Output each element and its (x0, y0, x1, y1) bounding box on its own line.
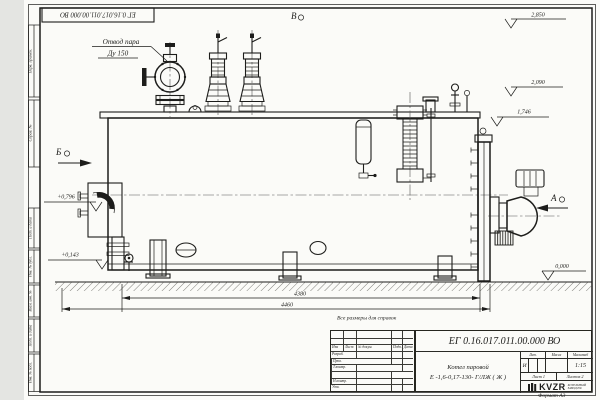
col-podp: Подп. (391, 344, 402, 351)
elevation-0000: 0,000 (542, 264, 586, 280)
svg-text:0,000: 0,000 (555, 264, 569, 270)
margin-label: Подп. и дата (29, 217, 33, 240)
view-label-a: А (536, 193, 568, 212)
margin-box: Подп. и дата (29, 208, 41, 248)
margin-label: Подп. и дата (29, 325, 33, 348)
svg-text:Б: Б (55, 147, 62, 157)
role-razrab: Разраб. (331, 351, 356, 358)
lifting-lug (189, 106, 201, 113)
col-ndocum: № докум. (356, 344, 391, 351)
support-leg (434, 256, 456, 280)
role-prov: Пров. (331, 358, 356, 365)
deck-fittings (423, 84, 470, 112)
company-name: КОТЕЛЬНЫЙ ЗАВОД РФ (568, 384, 586, 391)
doc-number: ЕГ 0.16.017.011.00.000 ВО (416, 331, 593, 351)
margin-box: Инв. № подл. (29, 354, 41, 392)
company-logo-cell: KVZR КОТЕЛЬНЫЙ ЗАВОД РФ (520, 380, 593, 393)
callout-line1: Отвод пара (103, 38, 140, 46)
economizer-box (78, 183, 122, 237)
lit-value: И (520, 358, 528, 372)
level-probe (356, 120, 377, 178)
safety-valve-1 (205, 30, 231, 116)
boiler-side-view (55, 30, 592, 291)
product-name-line1: Котел паровой (447, 363, 488, 373)
role-nkontr: Н.контр. (331, 378, 356, 385)
support-leg (279, 252, 301, 280)
water-level-gauge (393, 92, 435, 200)
product-name-line2: Е -1,6-0,17-130- Г/ЛЖ ( Ж ) (430, 373, 506, 383)
support-column (146, 240, 170, 278)
view-label-b: Б (55, 147, 92, 167)
lit-header: Лит. (520, 351, 545, 358)
boiler-shell (108, 118, 478, 270)
top-stamp-doc-number: ЕГ 0.16.017.011.00.000 ВО (60, 11, 137, 18)
manhole-right (310, 242, 326, 255)
col-izm: Изм (331, 344, 343, 351)
margin-label: Инв. № подл. (29, 362, 33, 384)
margin-columns: Перв. примен. Справ. № Подп. и дата Инв.… (28, 25, 41, 392)
margin-label: Справ. № (28, 124, 33, 141)
svg-text:2,850: 2,850 (531, 13, 545, 19)
scale-header: Масштаб (567, 351, 593, 358)
sheets-total: Листов 2 (556, 372, 593, 380)
product-name: Котел паровой Е -1,6-0,17-130- Г/ЛЖ ( Ж … (416, 351, 520, 393)
format-label: Формат А3 (538, 393, 565, 399)
rear-flange-wall (471, 128, 492, 281)
title-block-revision-grid: Изм Лист № докум. Подп. Дата Разраб. Про… (330, 330, 415, 392)
kvzr-logo-icon (528, 383, 537, 392)
logo-text: KVZR (539, 382, 566, 392)
view-label-v: В (291, 11, 304, 21)
margin-label: Инв. № дубл. (29, 256, 33, 278)
svg-text:2,090: 2,090 (531, 80, 545, 86)
sheet-number: Лист 1 (520, 372, 556, 380)
margin-label: Взам. инв. № (29, 290, 33, 311)
dim-4460: 4460 (281, 302, 293, 309)
margin-label: Перв. примен. (28, 49, 33, 75)
elevation-1746: 1,746 (491, 109, 549, 127)
dim-4380: 4380 (294, 291, 306, 298)
margin-box: Перв. примен. (28, 25, 41, 97)
svg-text:1,746: 1,746 (517, 109, 531, 116)
margin-box: Инв. № дубл. (29, 250, 41, 283)
steam-outlet-valve (142, 42, 186, 118)
margin-box: Подп. и дата (29, 319, 41, 352)
role-utv: Утв. (331, 384, 356, 391)
callout-line2: Ду 150 (107, 50, 129, 58)
svg-text:+0,796: +0,796 (57, 195, 75, 201)
elevation-0796: +0,796 (44, 195, 102, 212)
svg-text:В: В (291, 11, 297, 21)
safety-valve-2 (239, 30, 265, 116)
col-list: Лист (343, 344, 356, 351)
title-block-main: ЕГ 0.16.017.011.00.000 ВО Котел паровой … (415, 330, 592, 392)
ground-hatching (55, 282, 592, 291)
elevation-2090: 2,090 (505, 80, 563, 96)
col-data: Дата (402, 344, 413, 351)
margin-box: Справ. № (28, 100, 41, 167)
reference-note: Все размеры для справок (337, 315, 397, 322)
role-tkontr: Т.контр. (331, 364, 356, 371)
mass-header: Масса (545, 351, 567, 358)
margin-box: Взам. инв. № (29, 285, 41, 317)
svg-text:А: А (550, 193, 557, 203)
steam-outlet-callout: Отвод пара Ду 150 (92, 38, 167, 61)
role-blank (331, 371, 356, 378)
down-piping (107, 237, 133, 271)
elevation-0143: +0,143 (48, 252, 108, 270)
svg-text:+0,143: +0,143 (61, 252, 79, 259)
scanned-drawing-page: { "page": {"bg": "#e4e5e2", "paper": "#f… (0, 0, 600, 400)
mass-value (545, 358, 567, 372)
elevation-2850: 2,850 (505, 13, 566, 29)
scale-value: 1:15 (567, 358, 593, 372)
top-stamp: ЕГ 0.16.017.011.00.000 ВО (42, 8, 154, 22)
